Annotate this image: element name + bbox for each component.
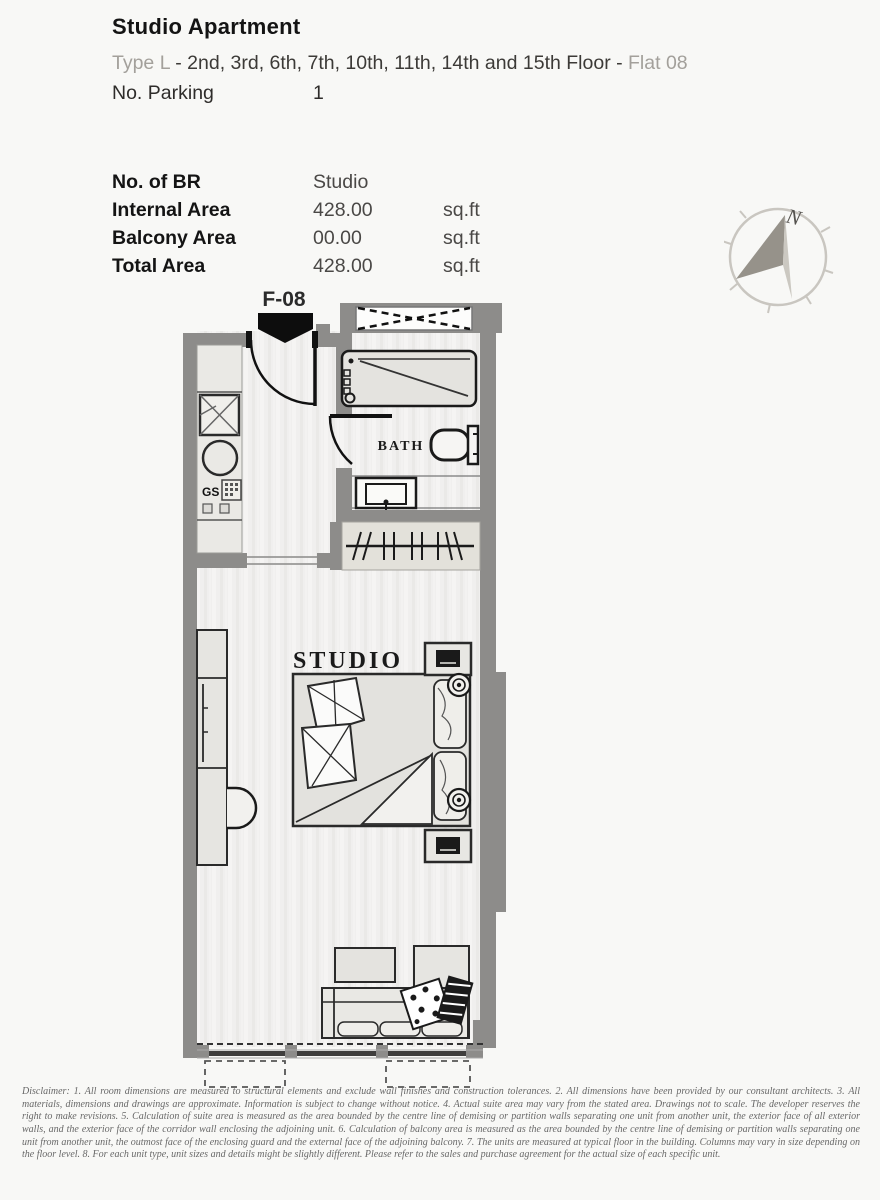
row-value: Studio: [313, 171, 443, 194]
service-shaft: [356, 307, 472, 330]
bedside-lamp: [448, 789, 470, 811]
nightstand: [425, 830, 471, 862]
row-value: 00.00: [313, 227, 443, 250]
row-value: 428.00: [313, 255, 443, 278]
row-unit: sq.ft: [443, 227, 480, 250]
toilet: [431, 426, 478, 464]
north-label: N: [783, 203, 804, 230]
balcony-outline: [205, 1061, 470, 1087]
parking-label: No. Parking: [112, 82, 214, 105]
closet: [342, 522, 480, 570]
floors-text: - 2nd, 3rd, 6th, 7th, 10th, 11th, 14th a…: [170, 52, 628, 74]
floor-plan: F-08: [180, 288, 510, 1088]
unit-type-line: Type L - 2nd, 3rd, 6th, 7th, 10th, 11th,…: [112, 52, 688, 75]
row-unit: sq.ft: [443, 255, 480, 278]
nightstand: [425, 643, 471, 675]
console-table: [335, 948, 395, 982]
chair: [227, 788, 256, 828]
bed: [293, 674, 470, 826]
gas-stove-label: GS: [202, 485, 219, 499]
table-row: No. of BR Studio: [112, 168, 480, 196]
disclaimer-text: Disclaimer: 1. All room dimensions are m…: [22, 1086, 860, 1162]
parking-value: 1: [313, 82, 324, 105]
kitchen-counter: GS: [197, 345, 242, 553]
row-label: Balcony Area: [112, 227, 313, 250]
compass-north-icon: N: [724, 202, 836, 314]
flat-number-label: Flat 08: [628, 52, 688, 74]
table-row: Total Area 428.00 sq.ft: [112, 252, 480, 280]
unit-number-label: F-08: [262, 288, 306, 311]
bathtub: [342, 351, 476, 406]
row-label: Total Area: [112, 255, 313, 278]
desk-unit: [197, 630, 227, 865]
kitchen-sink: [200, 395, 239, 435]
area-table: No. of BR Studio Internal Area 428.00 sq…: [112, 168, 480, 280]
studio-label: STUDIO: [293, 648, 403, 674]
row-value: 428.00: [313, 199, 443, 222]
compass-rose: N: [724, 203, 833, 313]
table-row: Internal Area 428.00 sq.ft: [112, 196, 480, 224]
page-title: Studio Apartment: [112, 14, 301, 40]
bath-label: BATH: [378, 439, 425, 454]
bedside-lamp: [448, 674, 470, 696]
row-label: Internal Area: [112, 199, 313, 222]
unit-type-label: Type L: [112, 52, 170, 74]
row-unit: sq.ft: [443, 199, 480, 222]
row-label: No. of BR: [112, 171, 313, 194]
table-row: Balcony Area 00.00 sq.ft: [112, 224, 480, 252]
